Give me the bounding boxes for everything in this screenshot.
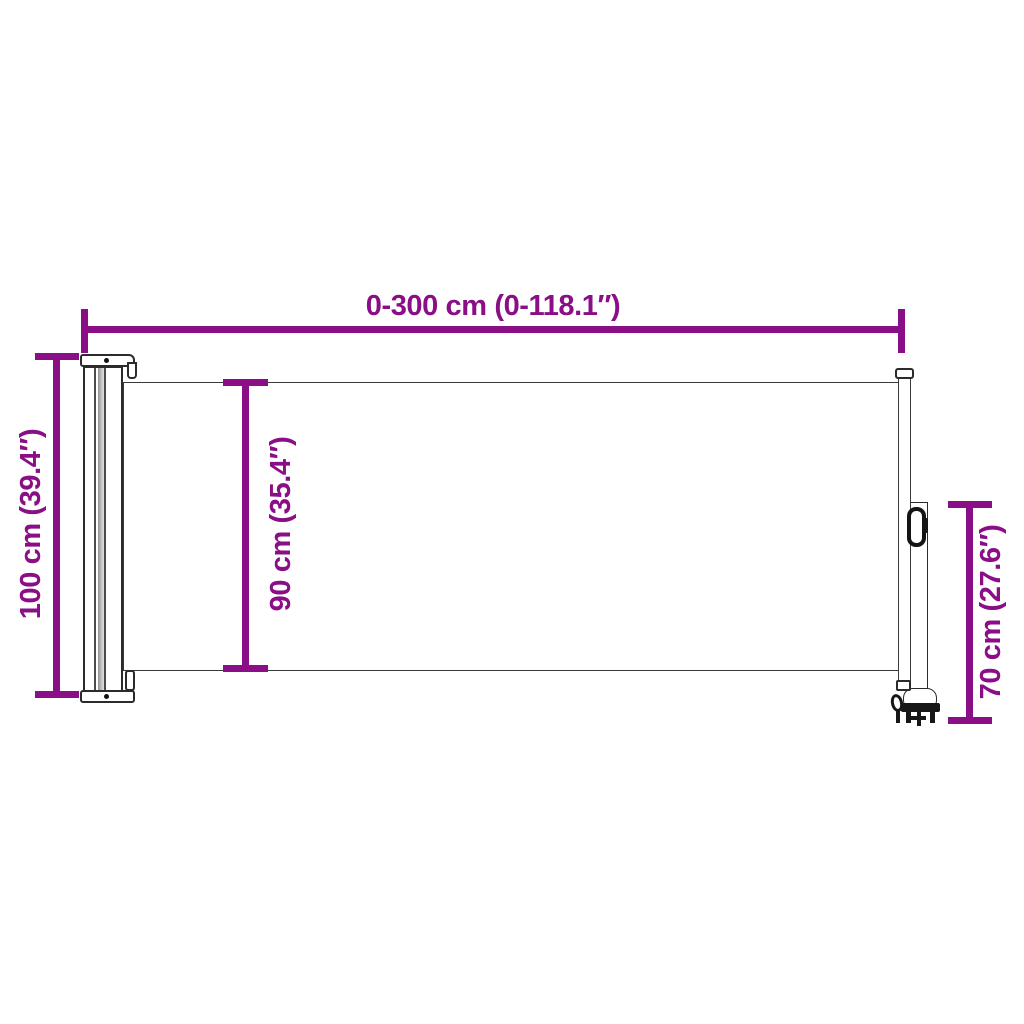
width-dimension-line [84, 326, 902, 333]
locking-handle-nub [923, 518, 928, 533]
cassette-profile-line [104, 368, 106, 690]
foot-leg-right [930, 711, 935, 723]
cassette-profile-line [94, 368, 96, 690]
post-height-dimension-line [966, 503, 973, 723]
fabric-height-dimension-cap-bottom [223, 665, 268, 672]
post-height-dimension-cap-bottom [948, 717, 992, 724]
cassette-top-bracket [127, 362, 137, 379]
front-bar-cap [895, 368, 914, 379]
width-dimension-label: 0-300 cm (0-118.1″) [293, 287, 693, 325]
fabric-height-dimension-line [242, 381, 249, 672]
width-dimension-tick-left [81, 309, 88, 353]
awning-fabric [123, 382, 899, 671]
total-height-dimension-cap-bottom [35, 691, 79, 698]
product-dimension-diagram: 0-300 cm (0-118.1″) 100 cm (39.4″) 90 cm… [0, 0, 1024, 1024]
total-height-dimension-label: 100 cm (39.4″) [11, 374, 51, 674]
width-dimension-tick-right [898, 309, 905, 353]
cassette-bottom-screw [104, 694, 109, 699]
cassette-top-screw [104, 358, 109, 363]
front-bar-end [896, 680, 911, 691]
foot-screw-bar [911, 716, 926, 720]
fabric-height-dimension-label: 90 cm (35.4″) [261, 374, 301, 674]
fabric-height-dimension-cap-top [223, 379, 268, 386]
total-height-dimension-line [53, 356, 60, 696]
cassette-bottom-cap [80, 690, 135, 703]
cassette-body [83, 366, 123, 692]
post-height-dimension-cap-top [948, 501, 992, 508]
cassette-bottom-bracket [125, 670, 135, 691]
total-height-dimension-cap-top [35, 353, 79, 360]
foot-clamp-stem [896, 709, 900, 723]
